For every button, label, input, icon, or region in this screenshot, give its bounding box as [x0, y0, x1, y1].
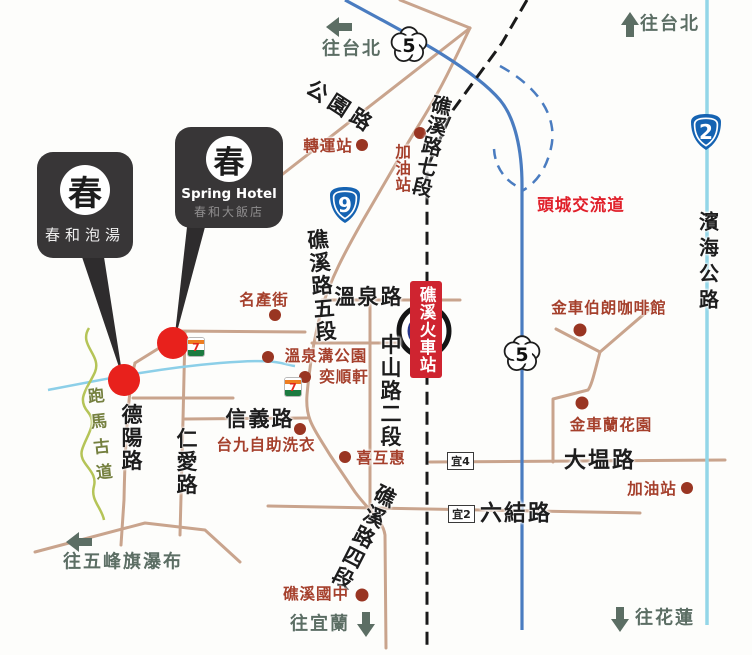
freeway-5-number-top: 5	[402, 35, 415, 57]
hotel-location-dot	[157, 327, 189, 359]
road-label-deyang: 德陽路	[120, 404, 142, 473]
county-road-plate-yi4: 宜4	[447, 452, 474, 470]
gas-station-br-dot	[681, 482, 693, 494]
county-road-plate-yi2: 宜2	[448, 505, 475, 523]
arrow-left-wufeng-icon	[66, 532, 92, 552]
seven-eleven-icon: 7	[284, 377, 302, 397]
xihuhui-dot	[339, 451, 351, 463]
arrow-down-yilan-icon	[357, 612, 375, 637]
arrow-down-hualien-icon	[611, 607, 629, 632]
callout-hotel-name-zh: 春和大飯店	[175, 203, 283, 220]
hotel-pointer	[174, 227, 205, 343]
hot-spring-location-dot	[108, 364, 140, 396]
station-banner: 礁溪火車站	[410, 281, 442, 378]
road-label-liujie: 六結路	[480, 502, 552, 525]
poi-label-mingchan-street: 名產街	[239, 292, 289, 308]
freeway-5-number-right: 5	[515, 344, 528, 366]
station-name: 礁溪火車站	[414, 286, 438, 374]
road-label-daweng: 大塭路	[564, 449, 636, 472]
arrow-up-taipei-icon	[621, 12, 639, 37]
jiaoxi-junior-high-dot	[356, 589, 369, 602]
callout-hot-spring: 春 春和泡湯	[37, 152, 133, 258]
callout-hotel: 春 Spring Hotel 春和大飯店	[175, 127, 283, 228]
kingcar-coffee-dot	[574, 324, 587, 337]
road-label-wenquan: 溫泉路	[335, 286, 404, 308]
road-label-binhai: 濱海公路	[697, 211, 718, 315]
poi-label-kingcar-orchid: 金車蘭花園	[570, 417, 653, 433]
jiaoxi-access-map: 礁溪火車站 公園路 礁溪路七段 礁溪路五段 溫泉路 中山路二段 信義路 德陽路 …	[0, 0, 752, 655]
provincial-2-number: 2	[699, 120, 713, 144]
poi-label-gas-station-br: 加油站	[627, 481, 677, 497]
poi-label-tai9-laundry: 台九自助洗衣	[216, 437, 315, 453]
poi-label-xihuhui: 喜互惠	[356, 450, 406, 466]
road-label-xinyi: 信義路	[226, 408, 295, 430]
seven-eleven-7: 7	[289, 382, 297, 393]
interchange-ramp-inner	[494, 149, 518, 187]
road-label-renai: 仁愛路	[175, 428, 197, 497]
poi-label-yishunxuan: 奕順軒	[319, 369, 369, 385]
mingchan-street-dot	[269, 309, 281, 321]
wenquangou-park-dot	[262, 351, 274, 363]
callout-hotel-name-en: Spring Hotel	[175, 186, 283, 202]
poi-label-gas-station-top: 加油站	[394, 143, 410, 193]
transfer-station-dot	[356, 139, 368, 151]
direction-label-yilan: 往宜蘭	[290, 616, 350, 635]
spring-logo-icon: 春	[206, 136, 252, 182]
stream-line	[48, 361, 295, 390]
seven-eleven-7: 7	[192, 342, 200, 353]
seven-eleven-icon: 7	[187, 337, 205, 357]
road-crosstown-line	[170, 331, 305, 332]
direction-label-taipei-left: 往台北	[322, 41, 382, 60]
interchange-label-toucheng: 頭城交流道	[537, 196, 625, 213]
tai9-laundry-dot	[294, 423, 306, 435]
poi-label-transfer-station: 轉運站	[303, 138, 353, 154]
direction-label-wufeng-falls: 往五峰旗瀑布	[63, 554, 183, 573]
direction-label-taipei-top: 往台北	[640, 16, 700, 35]
provincial-9-number: 9	[338, 193, 352, 217]
spring-logo-icon: 春	[60, 165, 110, 215]
kingcar-orchid-dot	[576, 397, 589, 410]
poi-label-jiaoxi-junior-high: 礁溪國中	[283, 586, 349, 602]
poi-label-kingcar-coffee: 金車伯朗咖啡館	[551, 300, 667, 316]
road-label-zhongshan2: 中山路二段	[379, 334, 401, 449]
road-kingcar-lower	[553, 352, 600, 462]
road-top-edge	[400, 0, 470, 28]
hot-spring-pointer	[82, 257, 123, 379]
direction-label-hualien: 往花蓮	[635, 610, 695, 629]
interchange-ramp-outer	[500, 66, 552, 191]
poi-label-wenquangou-park: 溫泉溝公園	[285, 348, 368, 364]
callout-hot-spring-label: 春和泡湯	[37, 224, 133, 245]
arrow-left-taipei-icon	[326, 17, 352, 37]
